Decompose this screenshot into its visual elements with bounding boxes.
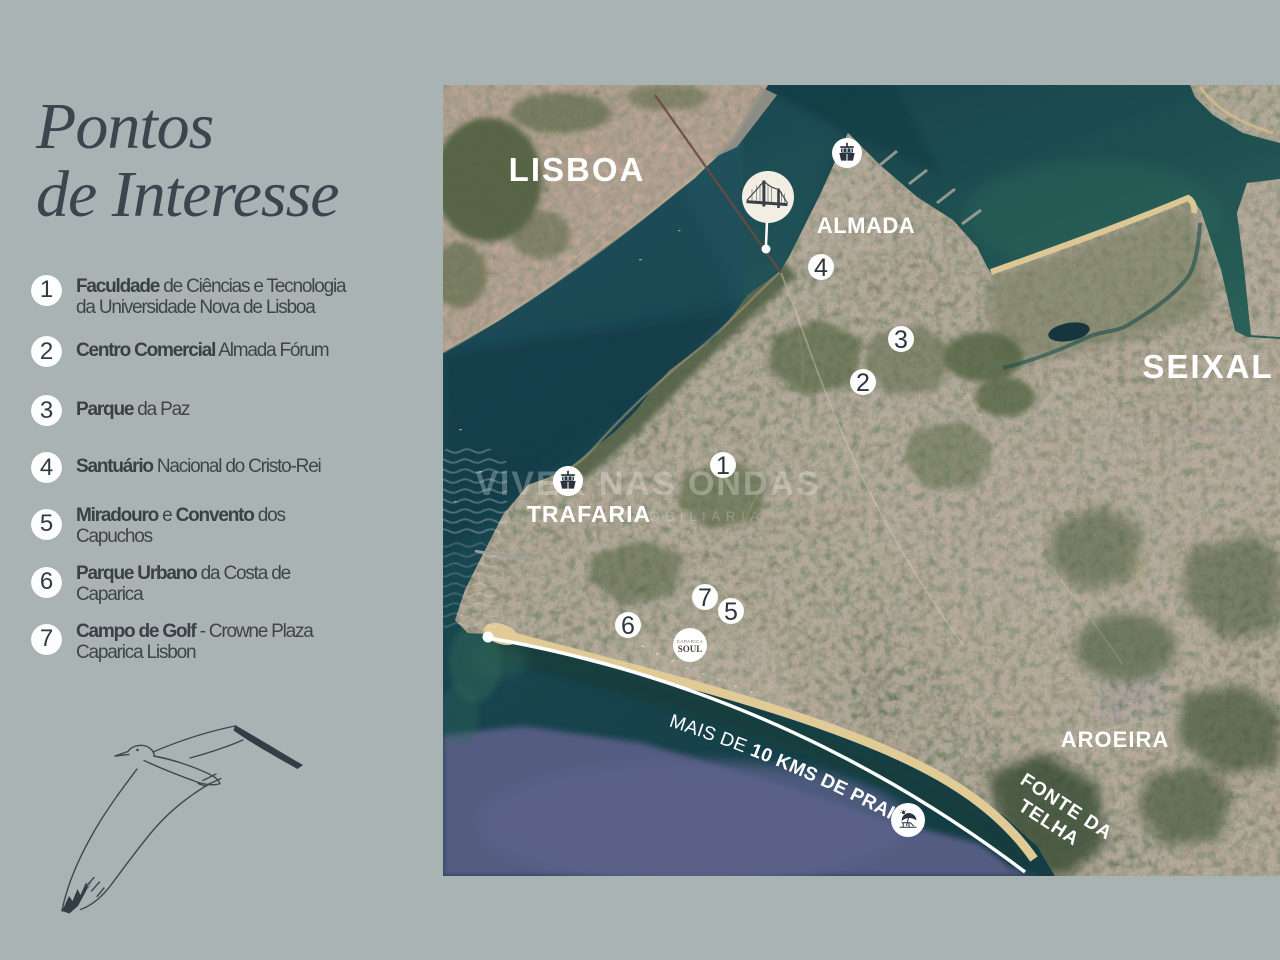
svg-text:ALMADA: ALMADA xyxy=(817,213,915,238)
svg-text:VIVER NAS ONDAS: VIVER NAS ONDAS xyxy=(475,465,821,503)
svg-text:LISBOA: LISBOA xyxy=(509,151,646,188)
svg-text:SOUL: SOUL xyxy=(678,644,703,654)
svg-text:SEIXAL: SEIXAL xyxy=(1142,348,1273,385)
svg-text:4: 4 xyxy=(814,254,828,282)
svg-text:3: 3 xyxy=(894,326,908,354)
svg-text:1: 1 xyxy=(716,452,730,480)
svg-text:AROEIRA: AROEIRA xyxy=(1061,727,1169,752)
svg-text:7: 7 xyxy=(698,584,712,612)
svg-text:6: 6 xyxy=(621,612,635,640)
svg-text:2: 2 xyxy=(856,369,870,397)
svg-text:TRAFARIA: TRAFARIA xyxy=(527,501,651,527)
svg-text:5: 5 xyxy=(724,598,738,626)
